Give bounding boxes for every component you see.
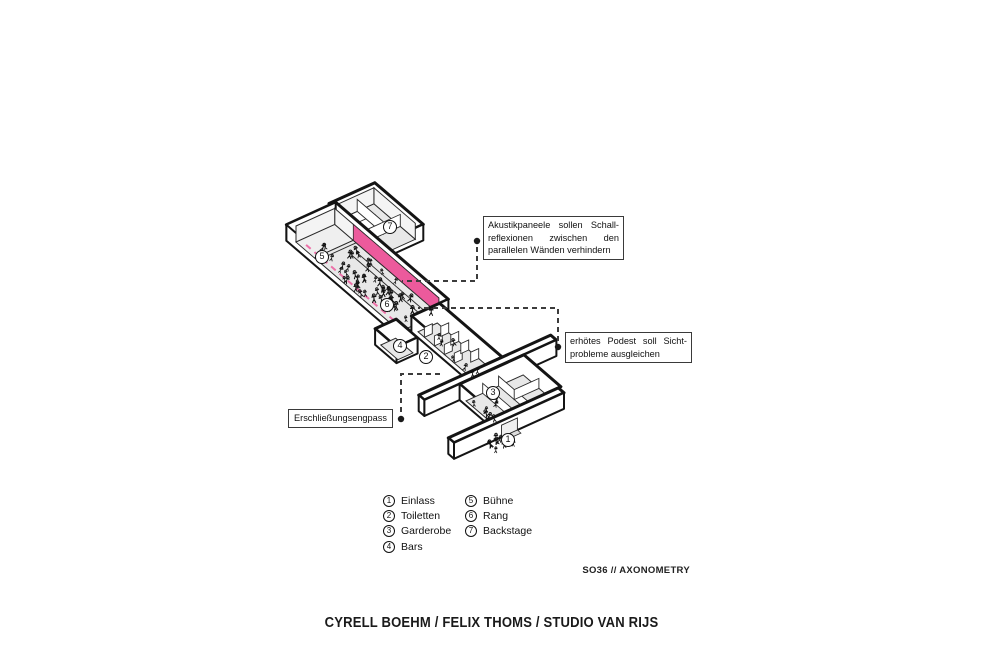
legend-number: 7 (465, 525, 477, 537)
legend-number: 5 (465, 495, 477, 507)
sheet-label: SO36 // AXONOMETRY (582, 565, 690, 576)
legend-item-bars: 4Bars (383, 539, 465, 554)
footer-credits: CYRELL BOEHM / FELIX THOMS / STUDIO VAN … (49, 615, 934, 631)
legend-number: 6 (465, 510, 477, 522)
annotation-line: Erschließungsengpass (294, 412, 387, 425)
annotation-circulation-bottleneck: Erschließungsengpass (288, 409, 393, 428)
connector-bullet-acoustic (474, 238, 480, 244)
legend-label: Bühne (483, 495, 513, 507)
entrance-queue-figure (494, 447, 497, 453)
legend-item-toiletten: 2Toiletten (383, 508, 465, 523)
legend-column-1: 1Einlass2Toiletten3Garderobe4Bars (383, 493, 465, 554)
annotation-acoustic-panels: Akustikpaneele sollen Schall-reflexionen… (483, 216, 624, 260)
legend-label: Rang (483, 510, 508, 522)
annotation-line: Akustikpaneele sollen Schall- (488, 219, 619, 232)
plan-marker-3: 3 (486, 386, 500, 400)
annotation-line: probleme ausgleichen (570, 348, 687, 361)
plan-marker-1: 1 (501, 433, 515, 447)
legend-item-rang: 6Rang (465, 508, 547, 523)
legend-number: 4 (383, 541, 395, 553)
annotation-line: erhötes Podest soll Sicht- (570, 335, 687, 348)
plan-marker-5: 5 (315, 250, 329, 264)
legend-column-2: 5Bühne6Rang7Backstage (465, 493, 547, 554)
legend-item-einlass: 1Einlass (383, 493, 465, 508)
legend-label: Einlass (401, 495, 435, 507)
legend-item-garderobe: 3Garderobe (383, 524, 465, 539)
legend-number: 2 (383, 510, 395, 522)
plan-marker-2: 2 (419, 350, 433, 364)
legend-label: Backstage (483, 525, 532, 537)
sheet: 1234567 Akustikpaneele sollen Schall-ref… (0, 0, 983, 655)
legend-label: Toiletten (401, 510, 440, 522)
legend-number: 3 (383, 525, 395, 537)
connector-bullet-podium (555, 344, 561, 350)
plan-marker-4: 4 (393, 339, 407, 353)
legend-item-bühne: 5Bühne (465, 493, 547, 508)
legend-number: 1 (383, 495, 395, 507)
legend-label: Garderobe (401, 525, 451, 537)
legend-item-backstage: 7Backstage (465, 524, 547, 539)
annotation-line: parallelen Wänden verhindern (488, 244, 619, 257)
legend-label: Bars (401, 541, 423, 553)
axonometric-drawing (0, 0, 983, 655)
plan-marker-7: 7 (383, 220, 397, 234)
legend: 1Einlass2Toiletten3Garderobe4Bars 5Bühne… (383, 493, 547, 554)
annotation-raised-podium: erhötes Podest soll Sicht-probleme ausgl… (565, 332, 692, 363)
connector-bullet-bottleneck (398, 416, 404, 422)
annotation-line: reflexionen zwischen den (488, 232, 619, 245)
plan-marker-6: 6 (380, 298, 394, 312)
